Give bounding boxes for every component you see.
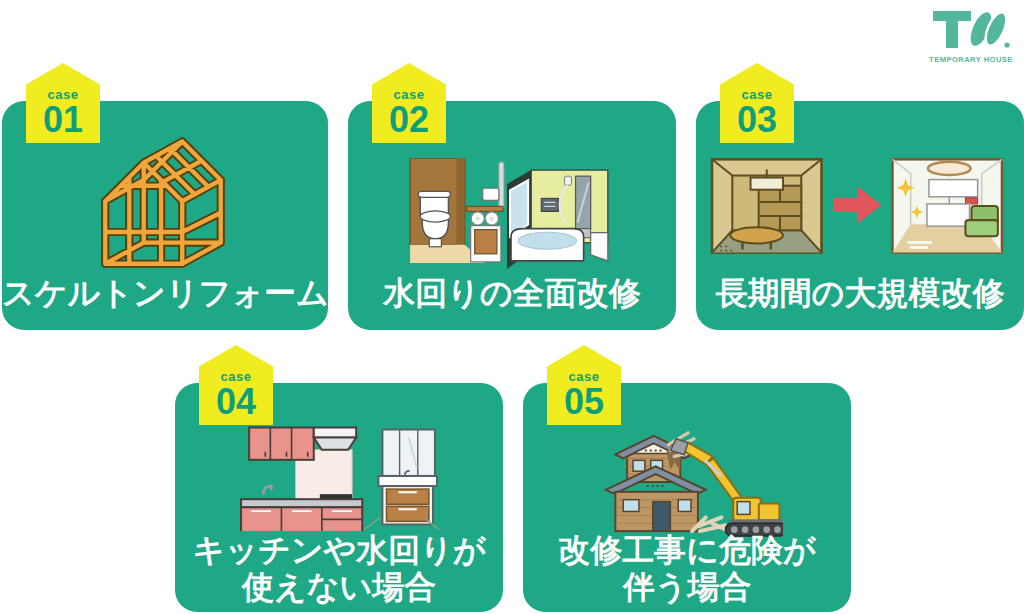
case-number: 05 xyxy=(547,384,621,420)
case-card-4: case 04 xyxy=(175,383,503,612)
card-title: 改修工事に危険が 伴う場合 xyxy=(523,532,851,606)
card-title-line1: 改修工事に危険が xyxy=(523,532,851,569)
card-title: スケルトンリフォーム xyxy=(2,275,328,312)
case-badge-3: case 03 xyxy=(720,63,794,143)
tw-monogram-icon xyxy=(930,8,1012,50)
case-card-1: case 01 スケルトンリフォーム xyxy=(2,101,328,330)
case-badge-2: case 02 xyxy=(372,63,446,143)
case-number: 04 xyxy=(199,384,273,420)
house-skeleton-frame-illustration xyxy=(86,133,240,279)
house-demolition-excavator-illustration xyxy=(601,425,783,537)
card-title-line1: 長期間の大規模改修 xyxy=(696,275,1024,312)
card-title-line2: 伴う場合 xyxy=(523,569,851,606)
card-title: キッチンや水回りが 使えない場合 xyxy=(175,532,503,606)
card-title: 長期間の大規模改修 xyxy=(696,275,1024,312)
card-title-line1: キッチンや水回りが xyxy=(175,532,503,569)
card-title-line1: 水回りの全面改修 xyxy=(348,275,676,312)
infographic-canvas: TEMPORARY HOUSE case 01 スケルトンリフォーム case … xyxy=(0,0,1024,614)
case-card-5: case 05 xyxy=(523,383,851,612)
case-number: 03 xyxy=(720,102,794,138)
case-number: 02 xyxy=(372,102,446,138)
card-title-line2: 使えない場合 xyxy=(175,569,503,606)
case-card-2: case 02 xyxy=(348,101,676,330)
card-title-line1: スケルトンリフォーム xyxy=(2,275,328,312)
room-before-after-illustration xyxy=(710,157,1006,263)
toilet-and-bathroom-illustration xyxy=(406,158,616,274)
company-logo: TEMPORARY HOUSE xyxy=(920,8,1022,64)
case-card-3: case 03 xyxy=(696,101,1024,330)
case-badge-4: case 04 xyxy=(199,345,273,425)
case-badge-1: case 01 xyxy=(26,63,100,143)
logo-name: TEMPORARY HOUSE xyxy=(920,55,1022,64)
kitchen-and-vanity-illustration xyxy=(235,425,441,531)
case-badge-5: case 05 xyxy=(547,345,621,425)
card-title: 水回りの全面改修 xyxy=(348,275,676,312)
